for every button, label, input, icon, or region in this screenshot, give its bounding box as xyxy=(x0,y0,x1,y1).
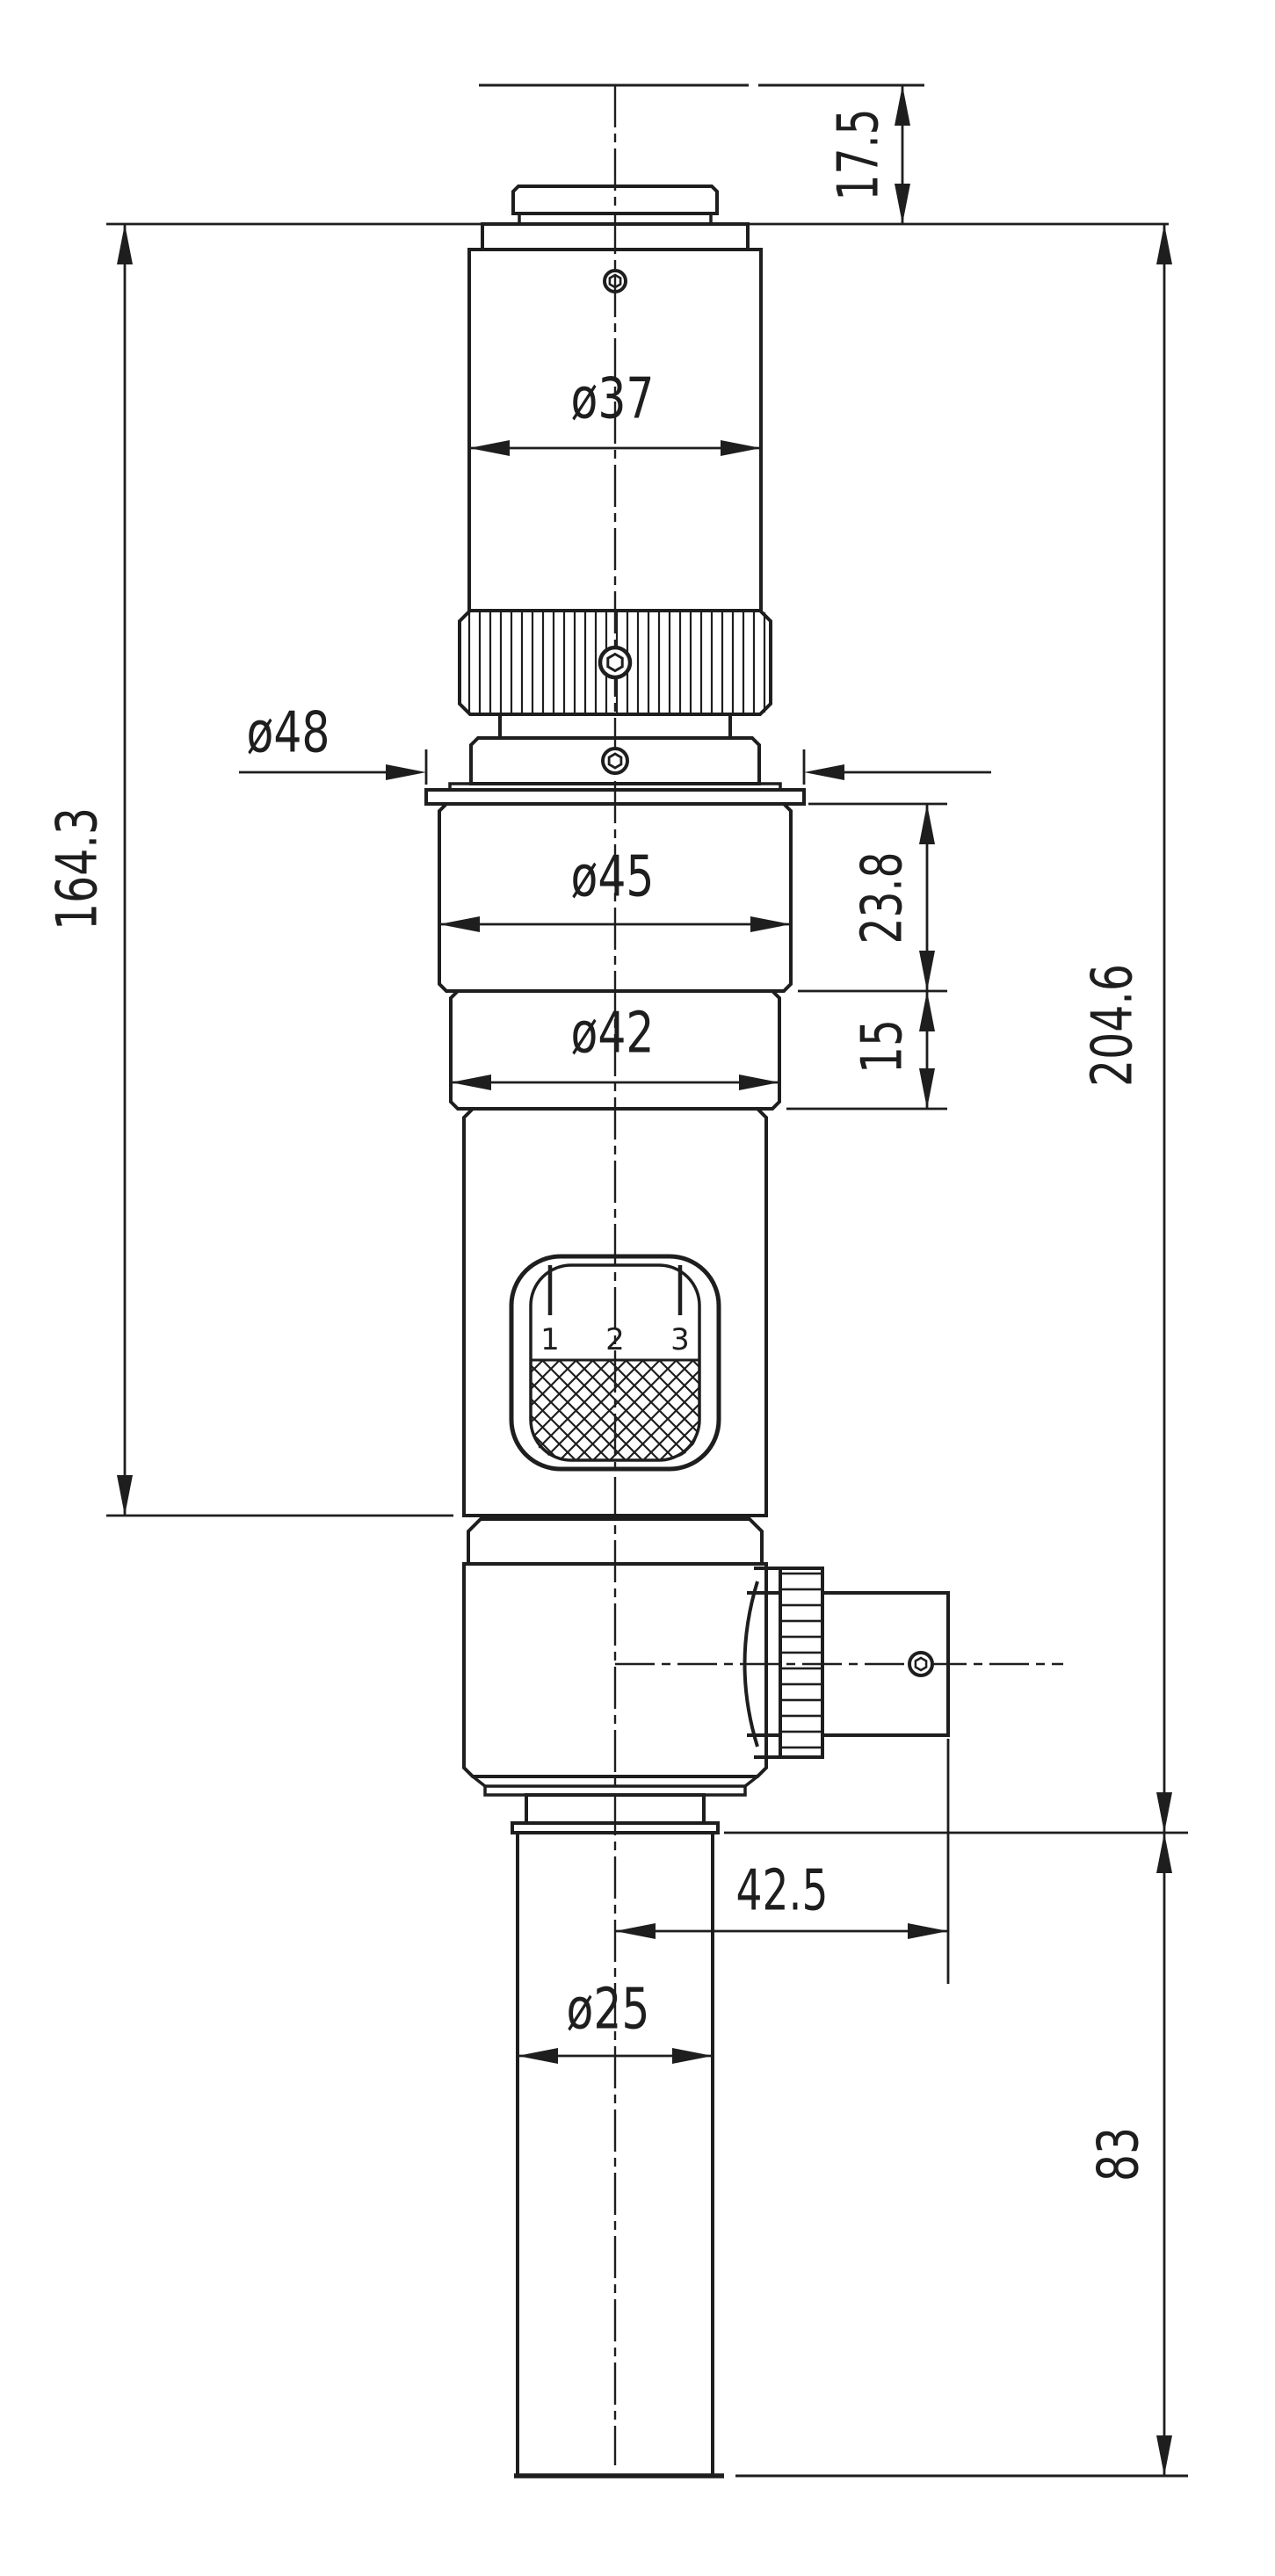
arrowhead-left xyxy=(451,1075,491,1090)
arrowhead-down xyxy=(895,184,910,224)
bnc-connector xyxy=(745,1568,949,1757)
bnc-pin-hole xyxy=(909,1653,932,1675)
arrowhead-down xyxy=(1156,2435,1172,2476)
arrowhead-right xyxy=(672,2048,713,2064)
arrowhead-right xyxy=(386,764,426,780)
arrowhead-right xyxy=(721,440,761,456)
dim-overall-height: 204.6 xyxy=(1081,224,1172,1833)
dim-label-overall-height: 204.6 xyxy=(1081,964,1146,1087)
drum-knurl-texture xyxy=(531,1360,699,1460)
arrowhead-down xyxy=(1156,1792,1172,1833)
arrowhead-left xyxy=(615,1923,656,1939)
bnc-knurl-texture xyxy=(782,1570,821,1755)
arrowhead-up xyxy=(1156,1833,1172,1873)
dim-lower-tube-height: 83 xyxy=(1087,1833,1172,2476)
dim-label-connector-offset: 42.5 xyxy=(736,1859,829,1924)
drawing-page: 17.5 ø37 xyxy=(0,0,1275,2576)
dim-ring42-height: 15 xyxy=(786,991,947,1109)
arrowhead-left xyxy=(518,2048,558,2064)
arrowhead-up xyxy=(117,224,133,264)
dim-label-lower-tube-diameter: ø25 xyxy=(567,1978,650,2043)
arrowhead-right xyxy=(739,1075,779,1090)
flange-screw xyxy=(603,749,627,773)
dim-upper-assembly-height: 164.3 xyxy=(46,224,453,1516)
arrowhead-left xyxy=(469,440,510,456)
dim-label-upper-tube-diameter: ø37 xyxy=(571,367,655,432)
dim-label-ring45-height: 23.8 xyxy=(851,852,916,944)
dim-label-ring42-height: 15 xyxy=(851,1019,916,1074)
arrowhead-down xyxy=(117,1475,133,1516)
dim-label-upper-assembly-height: 164.3 xyxy=(46,807,111,930)
dim-label-ring45-diameter: ø45 xyxy=(571,845,655,910)
dim-label-lower-tube-height: 83 xyxy=(1087,2127,1152,2182)
knurled-focus-ring xyxy=(460,611,771,714)
focus-ring-screw xyxy=(600,648,630,677)
technical-drawing-canvas: 17.5 ø37 xyxy=(0,0,1275,2576)
arrowhead-right xyxy=(908,1923,948,1939)
arrowhead-down xyxy=(919,1068,935,1109)
scale-number-2: 2 xyxy=(605,1322,625,1357)
scale-number-3: 3 xyxy=(670,1322,690,1357)
arrowhead-up xyxy=(919,991,935,1031)
arrowhead-left xyxy=(439,916,480,932)
dim-label-flange-diameter: ø48 xyxy=(247,701,330,766)
center-axes xyxy=(615,85,1063,2465)
dim-ring45-height: 23.8 xyxy=(798,804,947,991)
scale-number-1: 1 xyxy=(540,1322,560,1357)
mount-flange-assembly: ø48 xyxy=(239,701,991,804)
arrowhead-up xyxy=(895,85,910,126)
arrowhead-up xyxy=(919,804,935,844)
dim-label-cap-height: 17.5 xyxy=(827,109,892,201)
arrowhead-down xyxy=(919,951,935,991)
arrowhead-up xyxy=(1156,224,1172,264)
dim-cap-height: 17.5 xyxy=(827,85,910,224)
arrowhead-left xyxy=(804,764,844,780)
dim-label-ring42-diameter: ø42 xyxy=(571,1002,655,1067)
lower-housing xyxy=(464,1564,948,1776)
arrowhead-right xyxy=(750,916,791,932)
